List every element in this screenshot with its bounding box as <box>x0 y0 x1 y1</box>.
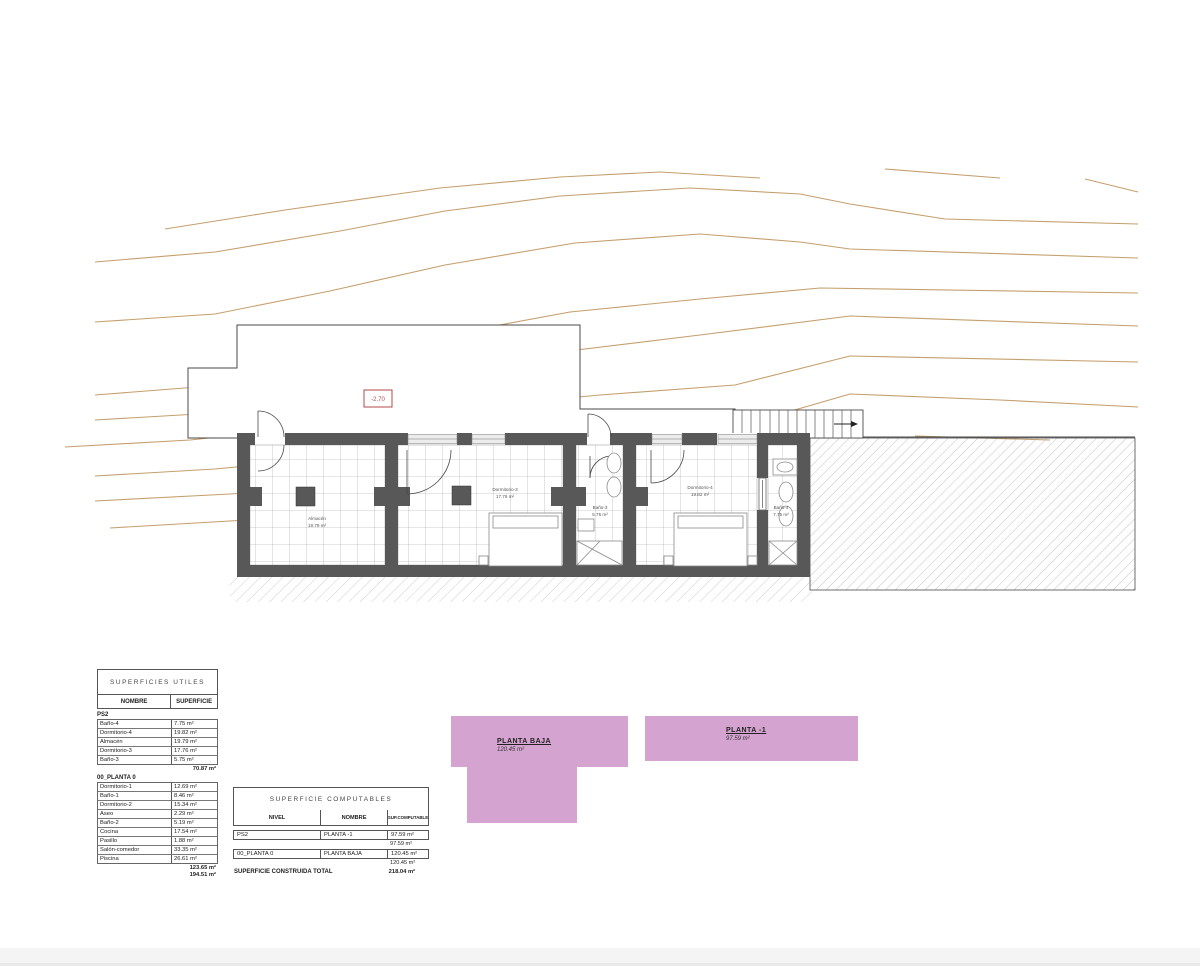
column-header-nombre: NOMBRE <box>320 810 387 825</box>
area-cell: 33.35 m² <box>171 846 217 854</box>
architectural-drawing-sheet: Almacén 19.79 m² Dormitorio-3 17.76 m² B… <box>0 0 1200 966</box>
section-rows: Baño-47.75 m²Dormitorio-419.82 m²Almacén… <box>97 719 218 765</box>
room-name-cell: Dormitorio-1 <box>98 783 171 791</box>
area-cell: 5.75 m² <box>171 756 217 764</box>
footer-bar <box>0 948 1200 963</box>
planta-menos1-label: PLANTA -1 <box>726 727 766 734</box>
section-total: 70.87 m² <box>97 765 218 772</box>
area-cell: 5.19 m² <box>171 819 217 827</box>
table-row: 00_PLANTA 0 PLANTA BAJA 120.45 m² <box>233 849 429 859</box>
room-name-cell: Dormitorio-2 <box>98 801 171 809</box>
column-header-superficie: SUPERFICIE <box>170 695 217 708</box>
room-label: Baño-3 <box>593 505 608 510</box>
superficies-utiles-table: SUPERFICIES UTILES NOMBRE SUPERFICIE PS2… <box>97 669 218 878</box>
table-row: PS2 PLANTA -1 97.59 m² <box>233 830 429 840</box>
table-row: Pasillo1.88 m² <box>98 836 217 845</box>
nivel-cell: PS2 <box>234 831 320 839</box>
ground-hatch-strip <box>230 577 812 602</box>
table-row: Cocina17.54 m² <box>98 827 217 836</box>
area-cell: 19.79 m² <box>171 738 217 746</box>
area-cell: 1.88 m² <box>171 837 217 845</box>
room-name-cell: Baño-4 <box>98 720 171 728</box>
planta-baja-area: 120.45 m² <box>497 747 551 753</box>
room-area: 5.75 m² <box>592 512 608 517</box>
section-total: 194.51 m² <box>97 871 218 878</box>
table-row: Baño-18.46 m² <box>98 791 217 800</box>
room-name-cell: Baño-3 <box>98 756 171 764</box>
construida-total-label: SUPERFICIE CONSTRUIDA TOTAL <box>233 869 386 875</box>
room-name-cell: Almacén <box>98 738 171 746</box>
table-row: Dormitorio-419.82 m² <box>98 728 217 737</box>
room-label: Dormitorio-3 <box>492 487 518 492</box>
table-title: SUPERFICIES UTILES <box>98 670 217 694</box>
table-row: Dormitorio-215.34 m² <box>98 800 217 809</box>
subtotal: 120.45 m² <box>387 859 429 866</box>
section-rows: Dormitorio-112.69 m²Baño-18.46 m²Dormito… <box>97 782 218 864</box>
ground-hatch-block <box>810 438 1135 590</box>
table-row: Baño-25.19 m² <box>98 818 217 827</box>
room-area: 7.75 m² <box>773 512 789 517</box>
sup-cell: 97.59 m² <box>387 831 428 839</box>
room-label: Baño-4 <box>774 505 789 510</box>
room-label: Almacén <box>308 516 326 521</box>
level-marker-value: -2.70 <box>371 397 385 403</box>
room-area: 19.82 m² <box>691 492 710 497</box>
column-header-sup-computable: SUP.COMPUTABLE <box>387 810 428 825</box>
planta-menos1-area: 97.59 m² <box>726 736 766 742</box>
room-label: Dormitorio-4 <box>687 485 713 490</box>
table-title: SUPERFICIE COMPUTABLES <box>234 788 428 810</box>
section-total: 123.65 m² <box>97 864 218 871</box>
room-name-cell: Pasillo <box>98 837 171 845</box>
room-name-cell: Dormitorio-3 <box>98 747 171 755</box>
sup-cell: 120.45 m² <box>387 850 428 858</box>
room-name-cell: Dormitorio-4 <box>98 729 171 737</box>
table-row: Salón-comedor33.35 m² <box>98 845 217 854</box>
nombre-cell: PLANTA -1 <box>320 831 387 839</box>
area-cell: 8.46 m² <box>171 792 217 800</box>
level-marker: -2.70 <box>364 390 392 407</box>
nivel-cell: 00_PLANTA 0 <box>234 850 320 858</box>
area-cell: 12.69 m² <box>171 783 217 791</box>
area-cell: 2.29 m² <box>171 810 217 818</box>
floor-plan: Almacén 19.79 m² Dormitorio-3 17.76 m² B… <box>0 0 1200 660</box>
area-cell: 19.82 m² <box>171 729 217 737</box>
column-header-nombre: NOMBRE <box>98 695 170 708</box>
room-name-cell: Piscina <box>98 855 171 863</box>
table-row: Dormitorio-317.76 m² <box>98 746 217 755</box>
area-cell: 26.61 m² <box>171 855 217 863</box>
area-cell: 7.75 m² <box>171 720 217 728</box>
room-area: 19.79 m² <box>308 523 327 528</box>
planta-baja-label: PLANTA BAJA <box>497 738 551 745</box>
construida-total-value: 218.04 m² <box>386 869 429 875</box>
nombre-cell: PLANTA BAJA <box>320 850 387 858</box>
table-row: Aseo2.29 m² <box>98 809 217 818</box>
column-header-nivel: NIVEL <box>234 810 320 825</box>
room-name-cell: Baño-2 <box>98 819 171 827</box>
room-name-cell: Baño-1 <box>98 792 171 800</box>
room-area: 17.76 m² <box>496 494 515 499</box>
area-cell: 17.54 m² <box>171 828 217 836</box>
subtotal: 97.59 m² <box>387 840 429 847</box>
room-name-cell: Aseo <box>98 810 171 818</box>
terrace-outline <box>188 325 735 438</box>
area-cell: 17.76 m² <box>171 747 217 755</box>
table-row: Dormitorio-112.69 m² <box>98 783 217 791</box>
superficie-computables-table: SUPERFICIE COMPUTABLES NIVEL NOMBRE SUP.… <box>233 787 429 875</box>
table-row: Almacén19.79 m² <box>98 737 217 746</box>
room-name-cell: Salón-comedor <box>98 846 171 854</box>
pocket-door <box>759 478 766 510</box>
section-label: PS2 <box>97 712 218 718</box>
table-row: Baño-35.75 m² <box>98 755 217 764</box>
area-cell: 15.34 m² <box>171 801 217 809</box>
table-row: Piscina26.61 m² <box>98 854 217 863</box>
section-label: 00_PLANTA 0 <box>97 775 218 781</box>
table-row: Baño-47.75 m² <box>98 720 217 728</box>
room-name-cell: Cocina <box>98 828 171 836</box>
